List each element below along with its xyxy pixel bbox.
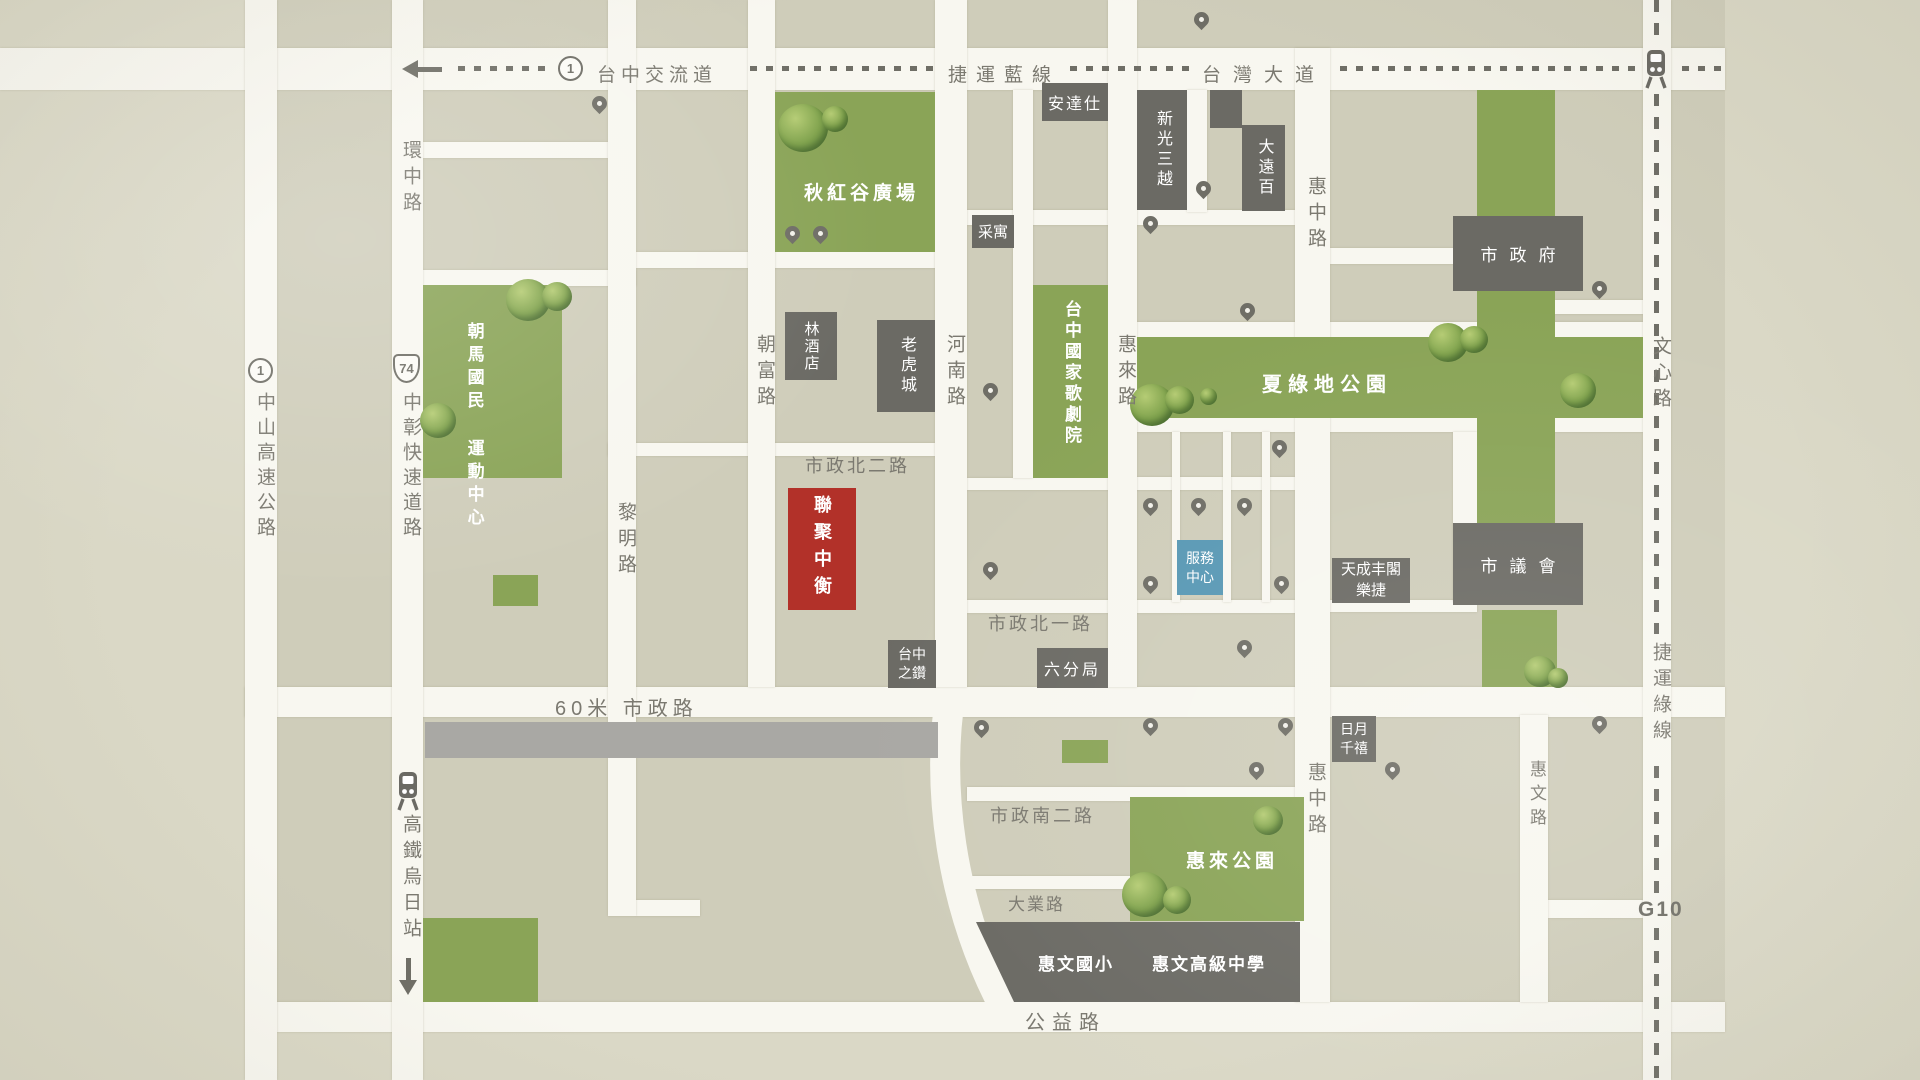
road-segment — [1137, 477, 1295, 490]
road-gongyi — [277, 1002, 1725, 1032]
building-label: 惠文高級中學 — [1152, 950, 1266, 975]
label-liming-rd: 黎明路 — [612, 502, 639, 580]
mrt-green-line-dashes — [1654, 766, 1659, 894]
building-huiwen-schools: 惠文國小 惠文高級中學 — [976, 922, 1300, 1002]
mrt-green-line-dashes — [1654, 928, 1659, 1080]
train-station-icon — [1644, 50, 1668, 95]
arrow-head — [399, 980, 417, 995]
mrt-blue-line-dots — [750, 66, 940, 71]
tree-icon — [778, 104, 828, 152]
highway-1-badge-icon: 1 — [558, 56, 583, 81]
building-label: 聯聚中衡 — [809, 495, 835, 603]
label-shizheng-bei-1: 市政北一路 — [988, 610, 1093, 636]
tree-icon — [420, 403, 456, 438]
building-label: 新光三越 — [1150, 110, 1174, 190]
road-segment — [423, 142, 608, 158]
tree-icon — [1165, 386, 1194, 414]
road-lane — [1013, 90, 1033, 478]
building-label: 惠文國小 — [1038, 950, 1114, 975]
building-caiyu: 采寓 — [972, 215, 1014, 248]
label-huizhong-rd-north: 惠中路 — [1302, 176, 1329, 254]
building-label: 采寓 — [978, 221, 1008, 242]
left-arrow-icon — [402, 60, 444, 78]
building-andaz: 安達仕 — [1042, 83, 1108, 121]
tree-icon — [1200, 388, 1217, 405]
building-tiancheng: 天成丰閣 樂捷 — [1332, 558, 1410, 603]
arrow-tail — [406, 958, 411, 982]
road-lane — [1223, 432, 1231, 602]
label-zhongshan-freeway: 中山高速公路 — [251, 392, 278, 542]
building-sun-moon-millennium: 日月 千禧 — [1332, 716, 1376, 762]
mrt-green-line-dashes — [1654, 0, 1659, 44]
building-label: 林酒店 — [801, 321, 822, 372]
building-lin-hotel: 林酒店 — [785, 312, 837, 380]
tree-icon — [1460, 326, 1488, 353]
road-lane — [1262, 432, 1270, 602]
label-zhongzhang-expressway: 中彰快速道路 — [397, 392, 424, 542]
city-blocks-north — [245, 0, 1725, 48]
building-tiger-city: 老虎城 — [877, 320, 935, 412]
label-shizheng-bei-2: 市政北二路 — [805, 452, 910, 478]
building-city-council: 市議會 — [1453, 523, 1583, 605]
label-mrt-green-line: 捷運綠線 — [1647, 642, 1674, 746]
label-taiwan-blvd: 台灣大道 — [1202, 60, 1326, 87]
green-patch — [423, 918, 538, 1002]
badge-number: 1 — [567, 61, 574, 76]
mrt-blue-line-dots — [1070, 66, 1190, 71]
label-daye-rd: 大業路 — [1008, 890, 1065, 915]
label-hsr-wuri-station: 高鐵烏日站 — [397, 814, 424, 944]
tree-icon — [542, 282, 572, 311]
badge-number: 74 — [399, 361, 413, 376]
road-huiwen — [1520, 715, 1548, 1002]
label-shizheng-nan-2: 市政南二路 — [990, 802, 1095, 828]
road-liming — [608, 0, 636, 916]
tree-icon — [1560, 373, 1596, 408]
tree-icon — [1122, 872, 1168, 917]
building-taichung-diamond: 台中 之鑽 — [888, 640, 936, 688]
label-shizheng-60m: 60米 市政路 — [555, 692, 698, 721]
road-segment — [1137, 418, 1643, 432]
label-henan-rd: 河南路 — [941, 334, 968, 412]
label-huizhong-rd-south: 惠中路 — [1302, 762, 1329, 840]
tree-icon — [1163, 886, 1191, 914]
road-segment — [1548, 900, 1643, 918]
label-chaofu-rd: 朝富路 — [751, 334, 778, 412]
building-label: 六分局 — [1044, 656, 1101, 680]
label-huiwen-rd: 惠文路 — [1524, 760, 1549, 832]
label-huanzhong-rd: 環中路 — [397, 140, 424, 218]
label-park-xialvdi: 夏綠地公園 — [1262, 368, 1392, 397]
tree-icon — [1253, 806, 1283, 835]
tree-icon — [1548, 668, 1568, 688]
road-segment — [636, 900, 700, 916]
building-shinkong-mitsukoshi: 新光三越 — [1137, 90, 1187, 210]
building-city-hall: 市政府 — [1453, 216, 1583, 291]
building-label: 台中 之鑽 — [898, 645, 926, 683]
label-park-huilai: 惠來公園 — [1186, 846, 1278, 873]
road-daye — [965, 876, 1133, 889]
arrow-tail — [416, 67, 442, 72]
road-segment — [1137, 322, 1643, 337]
label-wenxin-rd: 文心路 — [1647, 336, 1674, 414]
label-park-qiuhonggu: 秋紅谷廣場 — [804, 178, 919, 205]
building-top-city: 大遠百 — [1242, 125, 1285, 211]
building-label: 安達仕 — [1048, 90, 1102, 114]
road-segment — [1555, 300, 1643, 314]
building-label: 天成丰閣 樂捷 — [1341, 560, 1401, 601]
label-huilai-rd: 惠來路 — [1112, 334, 1139, 412]
label-park-chaoma: 朝馬國民 運動中心 — [458, 322, 489, 531]
highway-1-badge-icon: 1 — [248, 358, 273, 383]
label-gongyi-rd: 公益路 — [1025, 1006, 1106, 1035]
label-g10-station: G10 — [1638, 898, 1684, 922]
down-arrow-icon — [399, 958, 417, 996]
road-shizheng — [245, 687, 1725, 717]
map-canvas: 安達仕 新光三越 大遠百 采寓 林酒店 老虎城 市政府 市議會 天成丰閣 樂捷 … — [0, 0, 1920, 1080]
building-subject-lianju-zhongheng: 聯聚中衡 — [788, 488, 856, 610]
badge-number: 1 — [257, 363, 264, 378]
green-patch — [1062, 740, 1108, 763]
building-label: 市議會 — [1481, 552, 1568, 577]
label-mrt-blue-line: 捷運藍線 — [948, 60, 1060, 87]
building-label: 大遠百 — [1252, 138, 1276, 198]
building-label: 市政府 — [1481, 241, 1568, 266]
hsr-station-icon — [396, 772, 420, 817]
road-segment — [636, 252, 935, 268]
park-xialvdi-vertical — [1477, 90, 1555, 523]
mrt-blue-line-dots — [458, 66, 553, 71]
building-sixth-precinct: 六分局 — [1037, 648, 1108, 688]
mrt-blue-line-dots — [1682, 66, 1725, 71]
mrt-blue-line-dots — [1340, 66, 1637, 71]
label-interchange: 台中交流道 — [597, 60, 717, 87]
building-label: 老虎城 — [894, 336, 918, 396]
building-annex — [1210, 90, 1242, 128]
building-label: 服務 中心 — [1186, 549, 1214, 587]
tree-icon — [822, 106, 848, 132]
green-patch — [493, 575, 538, 606]
label-national-theater: 台中國家歌劇院 — [1059, 300, 1084, 447]
building-label: 日月 千禧 — [1340, 720, 1368, 758]
corridor-strip — [425, 722, 938, 758]
building-service-center: 服務 中心 — [1177, 540, 1223, 595]
